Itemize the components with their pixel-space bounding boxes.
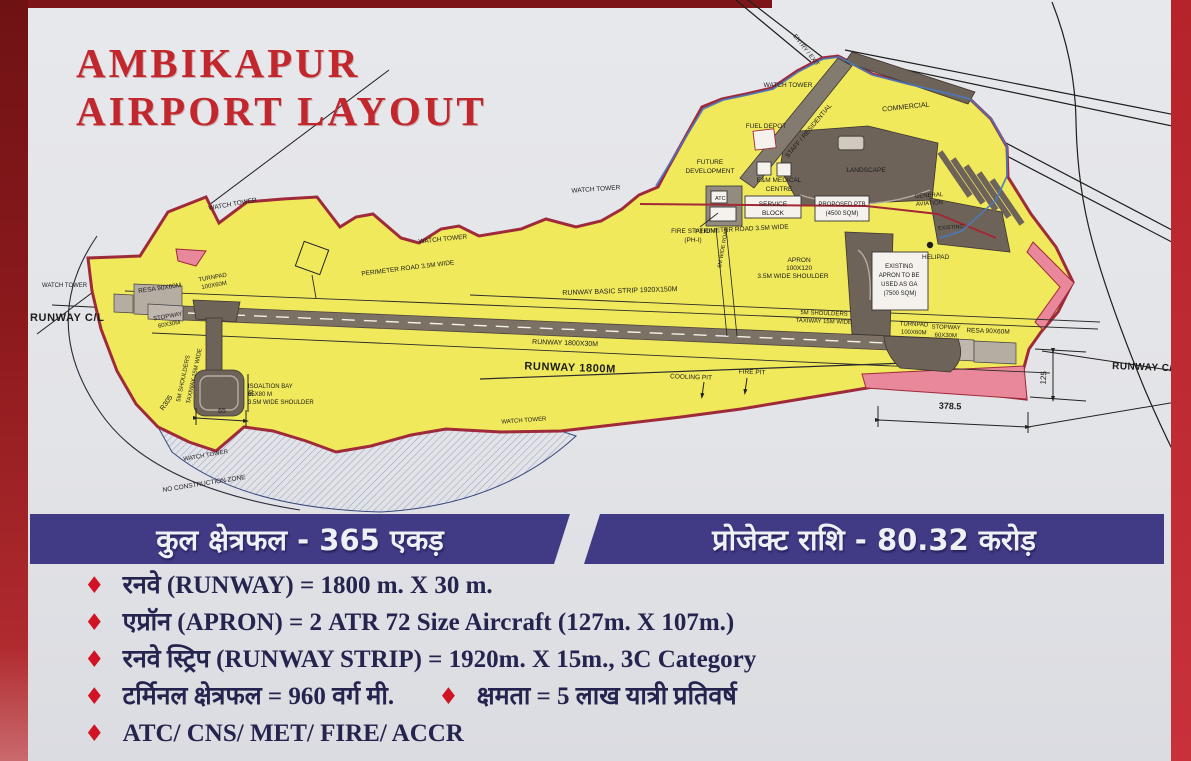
label-landscape: LANDSCAPE	[846, 167, 886, 174]
spec-row-runway-strip: ♦ रनवे स्ट्रिप (RUNWAY STRIP) = 1920m. X…	[84, 645, 1154, 675]
diamond-bullet-icon: ♦	[84, 571, 105, 601]
label-watch-tower: WATCH TOWER	[42, 283, 88, 289]
photo-frame-right	[1171, 0, 1191, 761]
label-dim-90: 90	[249, 389, 255, 397]
diamond-bullet-icon: ♦	[84, 719, 105, 749]
spec-row-terminal-capacity: ♦ टर्मिनल क्षेत्रफल = 960 वर्ग मी. ♦ क्ष…	[84, 682, 1154, 712]
photo-frame-left	[0, 0, 28, 761]
label-runway-cl-right: RUNWAY C/L	[1112, 361, 1180, 374]
label-dim-125: 125	[1039, 370, 1049, 384]
signboard-photo: WATCH TOWER WATCH TOWER WATCH TOWER WATC…	[0, 0, 1191, 761]
spec-services: ATC/ CNS/ MET/ FIRE/ ACCR	[123, 719, 464, 749]
diamond-bullet-icon: ♦	[84, 645, 105, 675]
label-fuel-depot: FUEL DEPOT	[746, 123, 787, 130]
spec-row-services: ♦ ATC/ CNS/ MET/ FIRE/ ACCR	[84, 719, 1154, 749]
airport-title: AMBIKAPUR AIRPORT LAYOUT	[76, 40, 487, 136]
specs-list: ♦ रनवे (RUNWAY) = 1800 m. X 30 m. ♦ एप्र…	[84, 571, 1154, 756]
label-runway-cl-left: RUNWAY C/L	[30, 312, 104, 324]
total-area-text: कुल क्षेत्रफल - 365 एकड़	[156, 520, 444, 559]
project-cost-banner: प्रोजेक्ट राशि - 80.32 करोड़	[584, 514, 1164, 564]
label-dim-65: 65	[218, 408, 226, 415]
title-line-1: AMBIKAPUR	[76, 40, 487, 88]
diamond-bullet-icon: ♦	[84, 608, 105, 638]
project-cost-text: प्रोजेक्ट राशि - 80.32 करोड़	[712, 520, 1036, 559]
label-watch-tower: WATCH TOWER	[764, 82, 813, 89]
label-watch-tower: WATCH TOWER	[571, 184, 621, 194]
spec-capacity: क्षमता = 5 लाख यात्री प्रतिवर्ष	[477, 682, 737, 712]
spec-runway: रनवे (RUNWAY) = 1800 m. X 30 m.	[123, 571, 493, 601]
spec-row-apron: ♦ एप्रॉन (APRON) = 2 ATR 72 Size Aircraf…	[84, 608, 1154, 638]
spec-apron: एप्रॉन (APRON) = 2 ATR 72 Size Aircraft …	[123, 608, 735, 638]
label-entry-exit: ENTRY / EXIT	[791, 34, 820, 68]
label-helipad: HELIPAD	[922, 254, 950, 261]
label-dim-378: 378.5	[939, 401, 962, 412]
diamond-bullet-icon: ♦	[438, 682, 459, 712]
label-atc: ATC	[715, 196, 726, 202]
helipad-dot	[927, 242, 933, 248]
total-area-banner: कुल क्षेत्रफल - 365 एकड़	[30, 514, 570, 564]
diamond-bullet-icon: ♦	[84, 682, 105, 712]
spec-terminal-area: टर्मिनल क्षेत्रफल = 960 वर्ग मी.	[123, 682, 394, 712]
title-line-2: AIRPORT LAYOUT	[76, 88, 487, 136]
label-fire-pit: FIRE PIT	[739, 369, 766, 377]
spec-runway-strip: रनवे स्ट्रिप (RUNWAY STRIP) = 1920m. X 1…	[123, 645, 757, 675]
label-cooling-pit: COOLING PIT	[670, 373, 712, 381]
spec-row-runway: ♦ रनवे (RUNWAY) = 1800 m. X 30 m.	[84, 571, 1154, 601]
